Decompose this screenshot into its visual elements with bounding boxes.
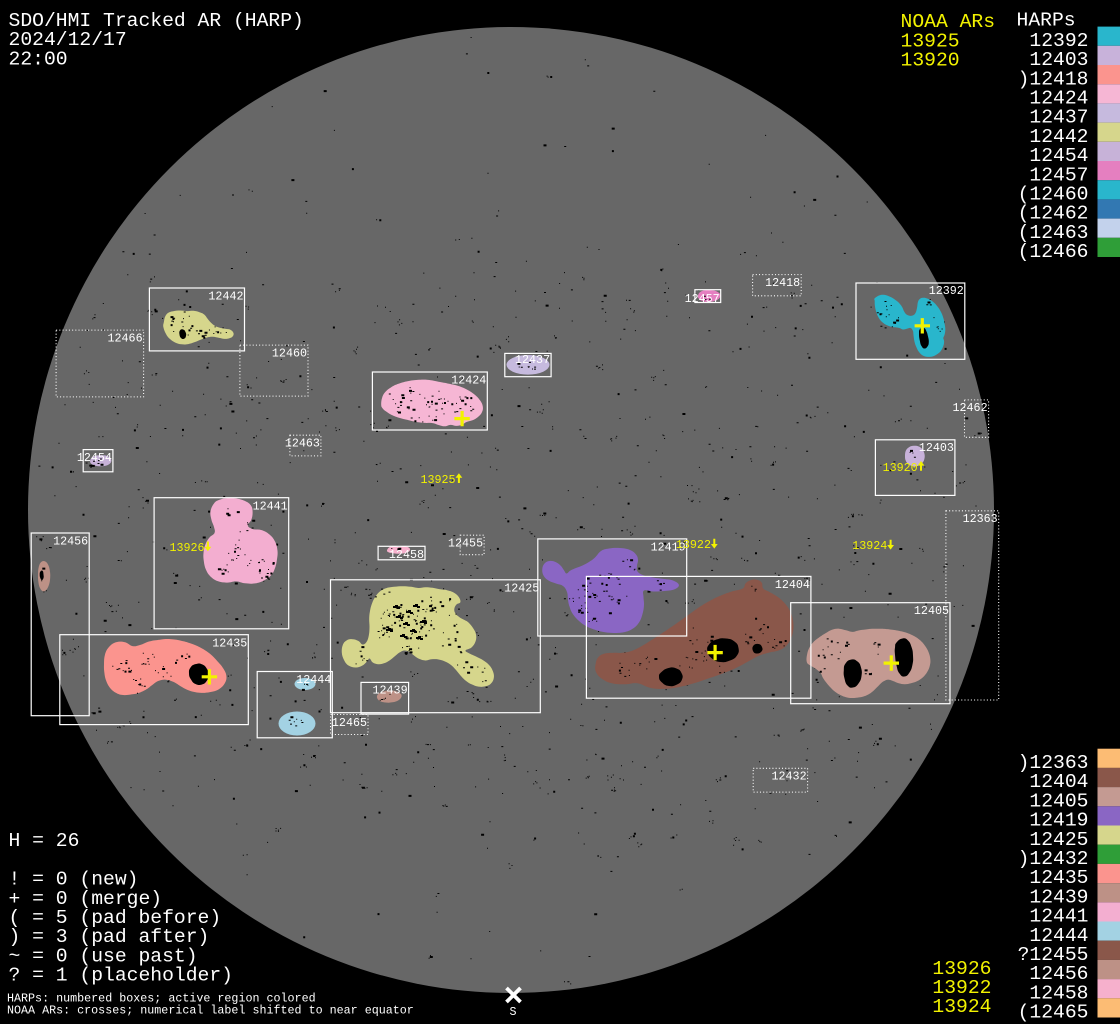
svg-text:12466: 12466	[108, 331, 143, 345]
svg-text:12455: 12455	[448, 537, 483, 551]
svg-text:13920: 13920	[901, 50, 960, 72]
svg-text:12457: 12457	[685, 292, 720, 306]
svg-text:(12465: (12465	[1018, 1002, 1089, 1024]
svg-text:13922: 13922	[676, 538, 711, 552]
svg-text:13920: 13920	[883, 461, 918, 475]
svg-text:12441: 12441	[253, 499, 288, 513]
svg-text:12424: 12424	[451, 374, 486, 388]
svg-text:12405: 12405	[914, 604, 949, 618]
svg-text:12454: 12454	[77, 451, 112, 465]
svg-text:12392: 12392	[929, 284, 964, 298]
svg-text:12418: 12418	[765, 276, 800, 290]
svg-text:13924: 13924	[852, 539, 887, 553]
svg-text:H = 26: H = 26	[9, 830, 80, 852]
svg-text:22:00: 22:00	[9, 48, 68, 70]
svg-text:12403: 12403	[919, 441, 954, 455]
svg-text:12456: 12456	[53, 534, 88, 548]
svg-text:NOAA ARs: crosses; numerical l: NOAA ARs: crosses; numerical label shift…	[7, 1003, 414, 1017]
svg-text:12460: 12460	[272, 346, 307, 360]
svg-text:12439: 12439	[373, 684, 408, 698]
svg-text:? = 1 (placeholder): ? = 1 (placeholder)	[9, 965, 233, 987]
svg-text:12463: 12463	[285, 437, 320, 451]
svg-text:12363: 12363	[963, 512, 998, 526]
svg-text:12442: 12442	[208, 290, 243, 304]
svg-text:12432: 12432	[772, 770, 807, 784]
svg-text:12458: 12458	[389, 548, 424, 562]
svg-text:13925: 13925	[421, 473, 456, 487]
svg-text:12425: 12425	[504, 582, 539, 596]
svg-text:13926: 13926	[170, 541, 205, 555]
svg-text:S: S	[509, 1005, 516, 1019]
svg-text:12444: 12444	[296, 673, 331, 687]
svg-text:12465: 12465	[332, 716, 367, 730]
svg-text:13924: 13924	[932, 996, 991, 1018]
svg-text:12462: 12462	[953, 401, 988, 415]
svg-text:(12466: (12466	[1018, 241, 1089, 263]
svg-text:12437: 12437	[515, 353, 550, 367]
svg-text:12435: 12435	[212, 636, 247, 650]
svg-text:12404: 12404	[775, 578, 810, 592]
svg-text:HARPs: HARPs	[1017, 9, 1076, 31]
